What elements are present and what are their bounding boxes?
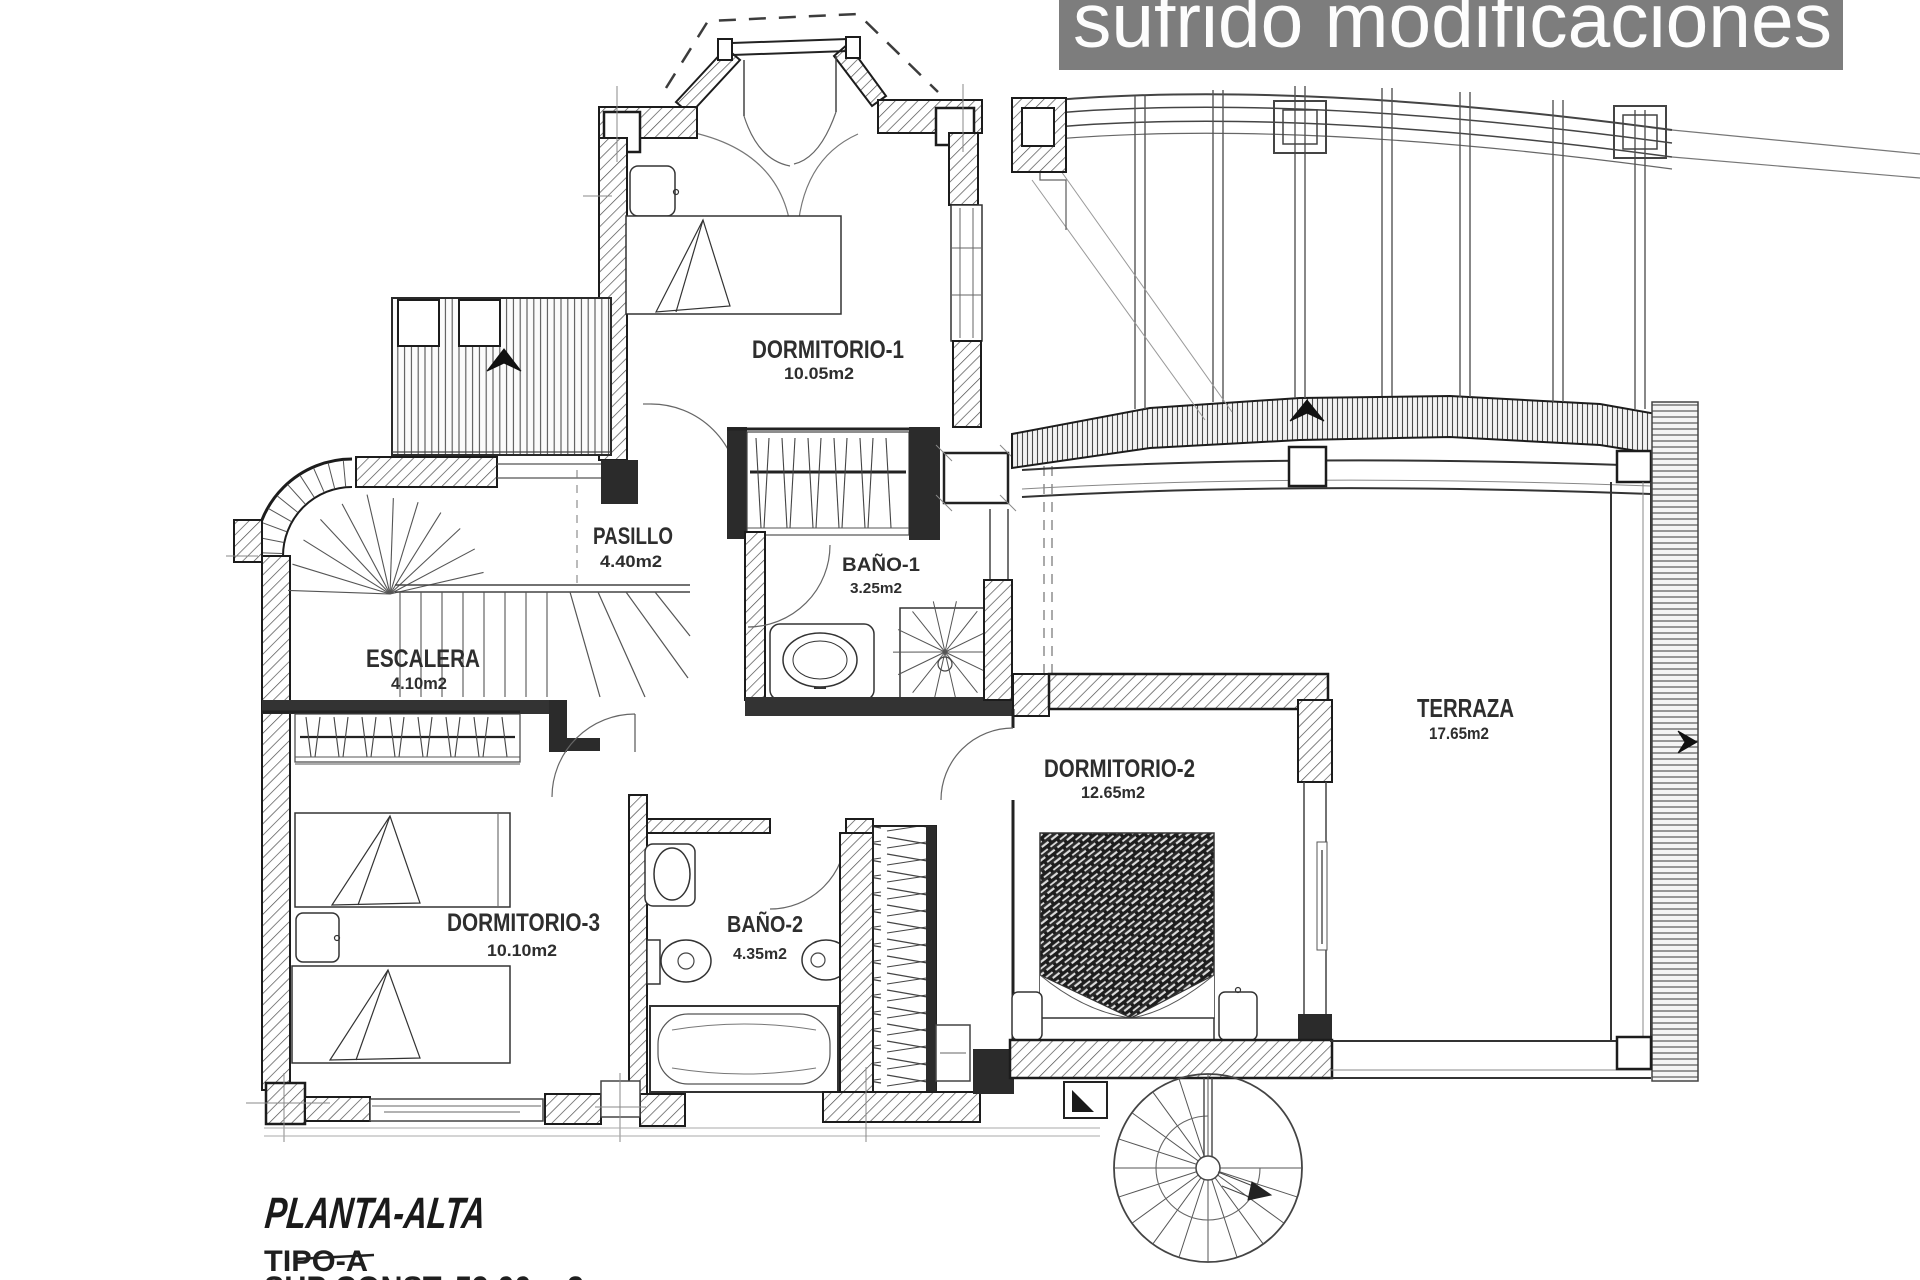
svg-text:BAÑO-1: BAÑO-1 [842,554,920,576]
svg-text:TERRAZA: TERRAZA [1417,693,1514,723]
svg-text:10.10m2: 10.10m2 [487,941,557,960]
svg-text:DORMITORIO-2: DORMITORIO-2 [1044,755,1195,783]
svg-text:PLANTA-ALTA: PLANTA-ALTA [263,1189,488,1238]
svg-text:17.65m2: 17.65m2 [1429,725,1489,743]
svg-text:SUP CONST. 59.00 m2: SUP CONST. 59.00 m2 [264,1270,584,1280]
svg-text:4.35m2: 4.35m2 [733,946,787,963]
svg-text:4.10m2: 4.10m2 [391,675,447,693]
svg-text:4.40m2: 4.40m2 [600,553,662,571]
svg-text:12.65m2: 12.65m2 [1081,783,1145,802]
svg-text:ESCALERA: ESCALERA [366,645,480,673]
svg-text:3.25m2: 3.25m2 [850,580,902,597]
svg-text:DORMITORIO-3: DORMITORIO-3 [447,909,600,937]
svg-text:DORMITORIO-1: DORMITORIO-1 [752,336,904,364]
svg-text:10.05m2: 10.05m2 [784,364,854,383]
svg-text:PASILLO: PASILLO [593,523,673,550]
svg-text:sufrido modificaciones: sufrido modificaciones [1073,0,1832,64]
svg-text:BAÑO-2: BAÑO-2 [727,910,803,937]
